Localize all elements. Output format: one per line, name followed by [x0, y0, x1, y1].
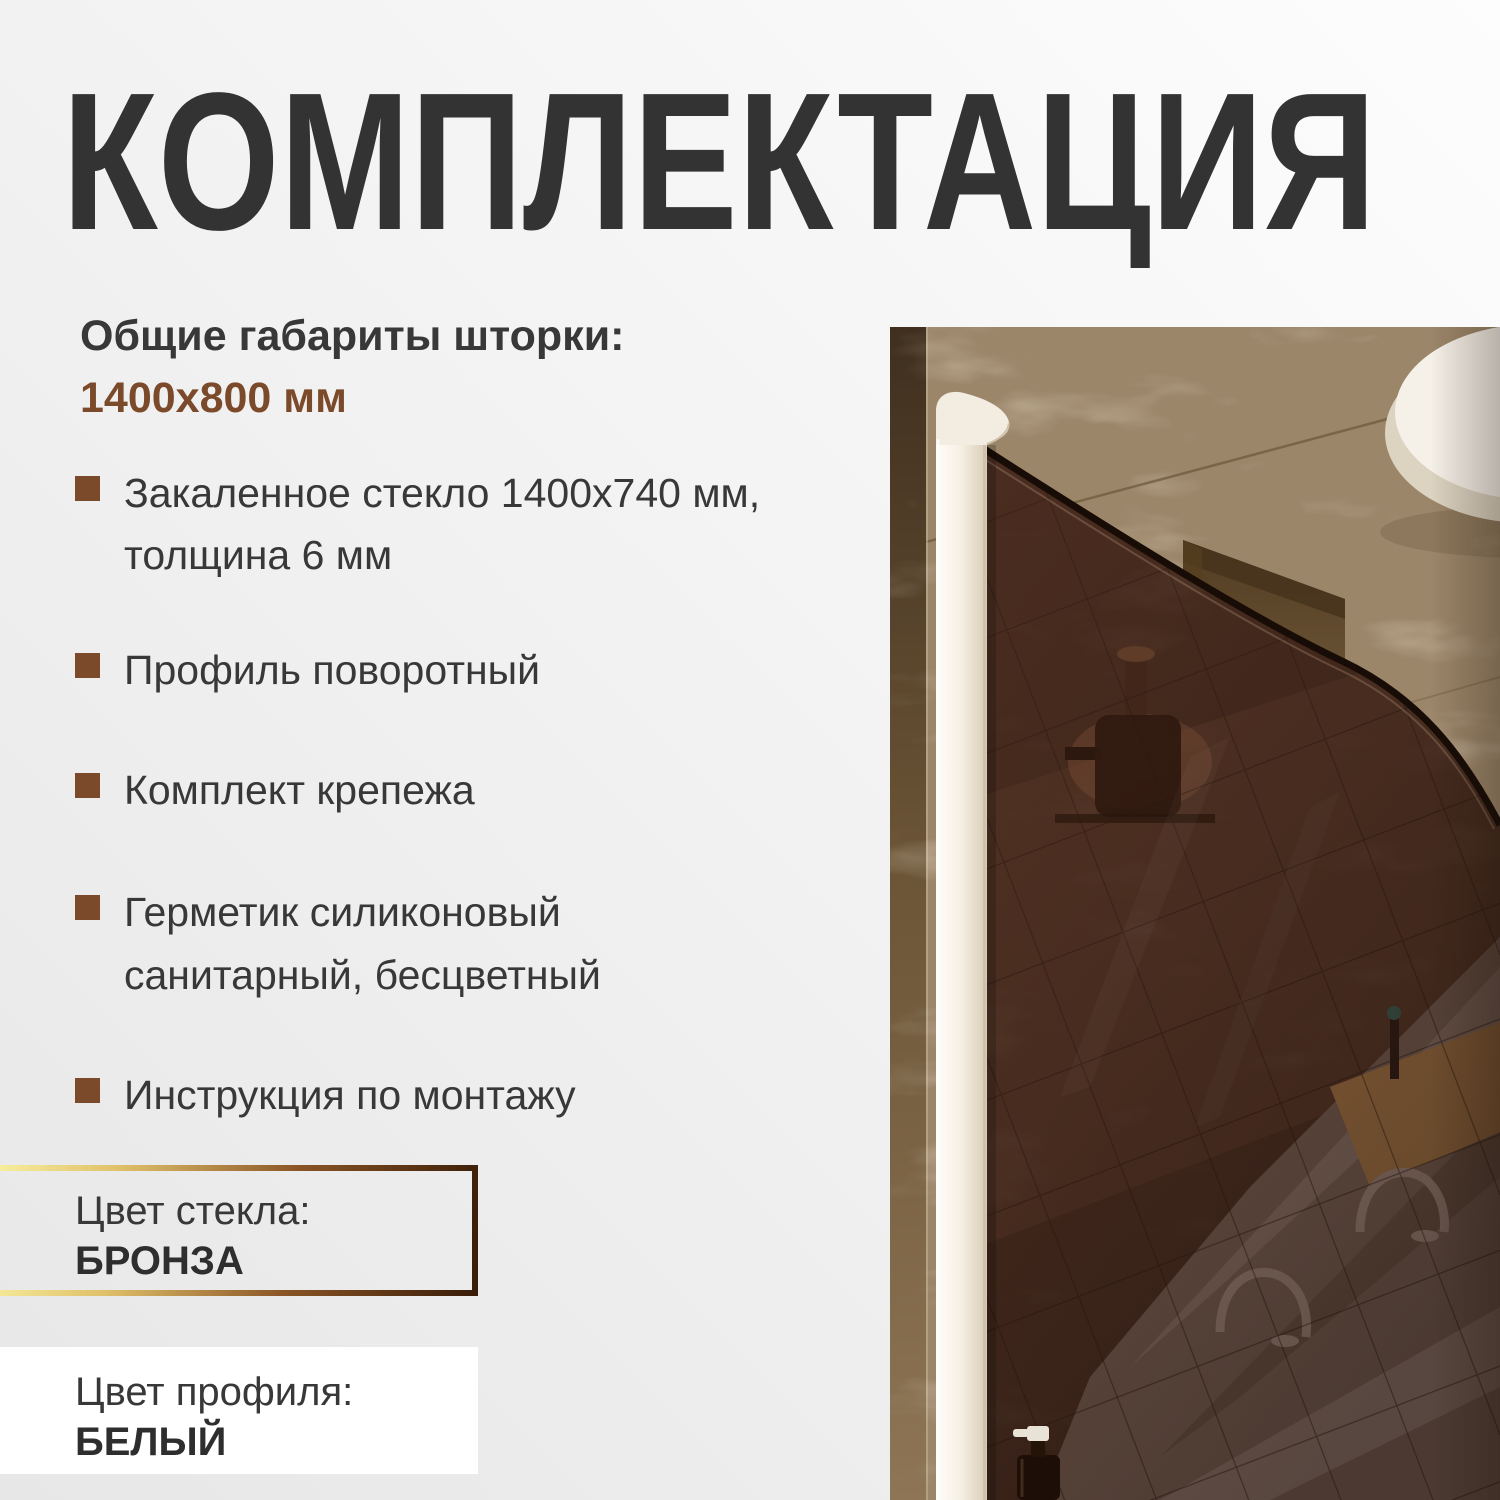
wall-corner-strip — [890, 327, 927, 1500]
list-item: Герметик силиконовый санитарный, бесцвет… — [75, 881, 855, 1006]
list-item: Профиль поворотный — [75, 639, 855, 701]
list-item: Закаленное стекло 1400х740 мм, толщина 6… — [75, 462, 855, 587]
features-list: Закаленное стекло 1400х740 мм, толщина 6… — [75, 462, 855, 1126]
glass-color-label: Цвет стекла: — [75, 1186, 472, 1236]
bullet-square-icon — [75, 476, 100, 501]
feature-text: Инструкция по монтажу — [124, 1064, 576, 1126]
list-item: Инструкция по монтажу — [75, 1064, 855, 1126]
profile-color-value: БЕЛЫЙ — [75, 1420, 478, 1465]
page-title: КОМПЛЕКТАЦИЯ — [62, 64, 1376, 260]
feature-text: Комплект крепежа — [124, 759, 475, 821]
feature-text: Закаленное стекло 1400х740 мм, толщина 6… — [124, 462, 760, 587]
profile-color-label: Цвет профиля: — [75, 1367, 478, 1417]
dimensions-value: 1400х800 мм — [80, 367, 624, 429]
feature-text: Герметик силиконовый санитарный, бесцвет… — [124, 881, 601, 1006]
dimensions-block: Общие габариты шторки: 1400х800 мм — [80, 305, 624, 430]
profile-color-box: Цвет профиля: БЕЛЫЙ — [0, 1347, 478, 1474]
bullet-square-icon — [75, 653, 100, 678]
bullet-square-icon — [75, 895, 100, 920]
vignette — [1430, 327, 1500, 1500]
bullet-square-icon — [75, 773, 100, 798]
bathroom-render — [890, 327, 1500, 1500]
feature-text: Профиль поворотный — [124, 639, 540, 701]
glass-color-value: БРОНЗА — [75, 1239, 472, 1284]
list-item: Комплект крепежа — [75, 759, 855, 821]
infographic-poster: КОМПЛЕКТАЦИЯ Общие габариты шторки: 1400… — [0, 0, 1500, 1500]
dimensions-label: Общие габариты шторки: — [80, 305, 624, 367]
glass-color-box: Цвет стекла: БРОНЗА — [0, 1165, 478, 1296]
product-photo — [890, 327, 1500, 1500]
bullet-square-icon — [75, 1078, 100, 1103]
